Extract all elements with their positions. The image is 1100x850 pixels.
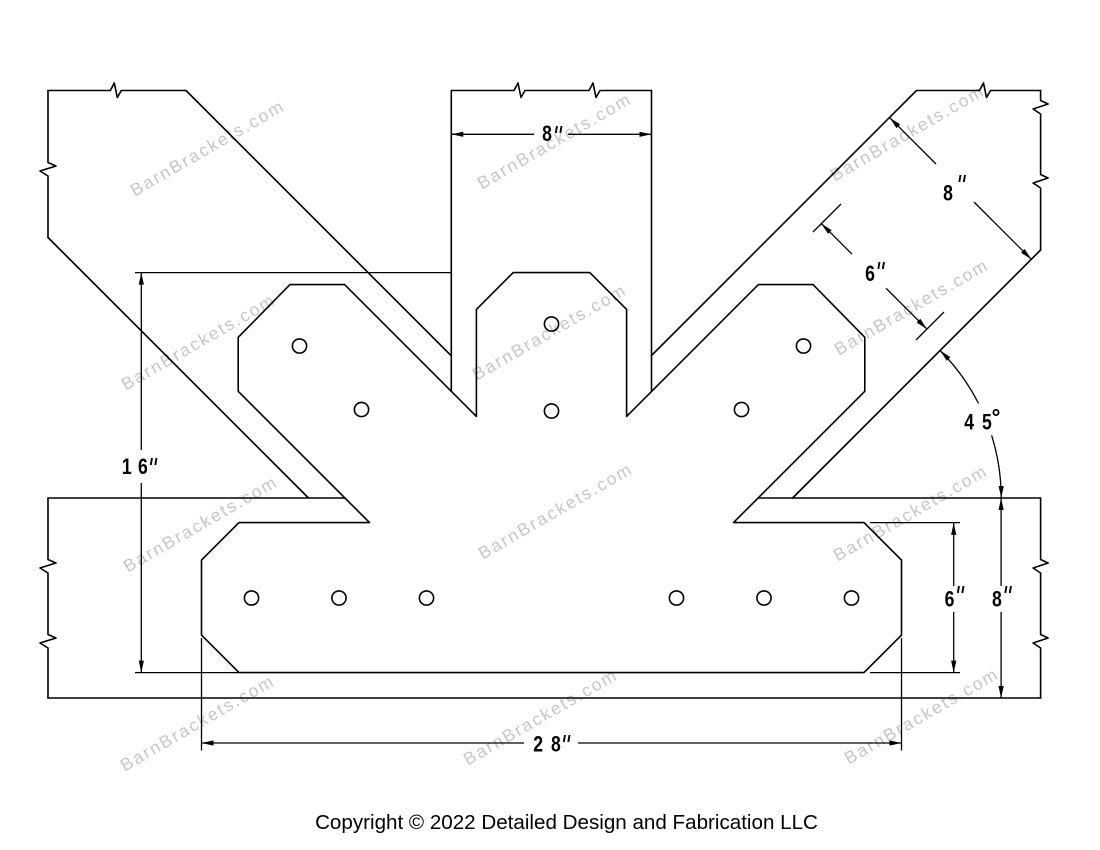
svg-text:28: 28 [533,733,569,757]
svg-text:8: 8 [542,122,552,146]
svg-text:6: 6 [945,588,955,612]
svg-text:6: 6 [865,262,875,286]
svg-text:16: 16 [122,455,154,479]
svg-text:Copyright © 2022 Detailed Desi: Copyright © 2022 Detailed Design and Fab… [315,811,818,834]
svg-text:8: 8 [992,588,1002,612]
svg-text:8: 8 [943,182,953,206]
